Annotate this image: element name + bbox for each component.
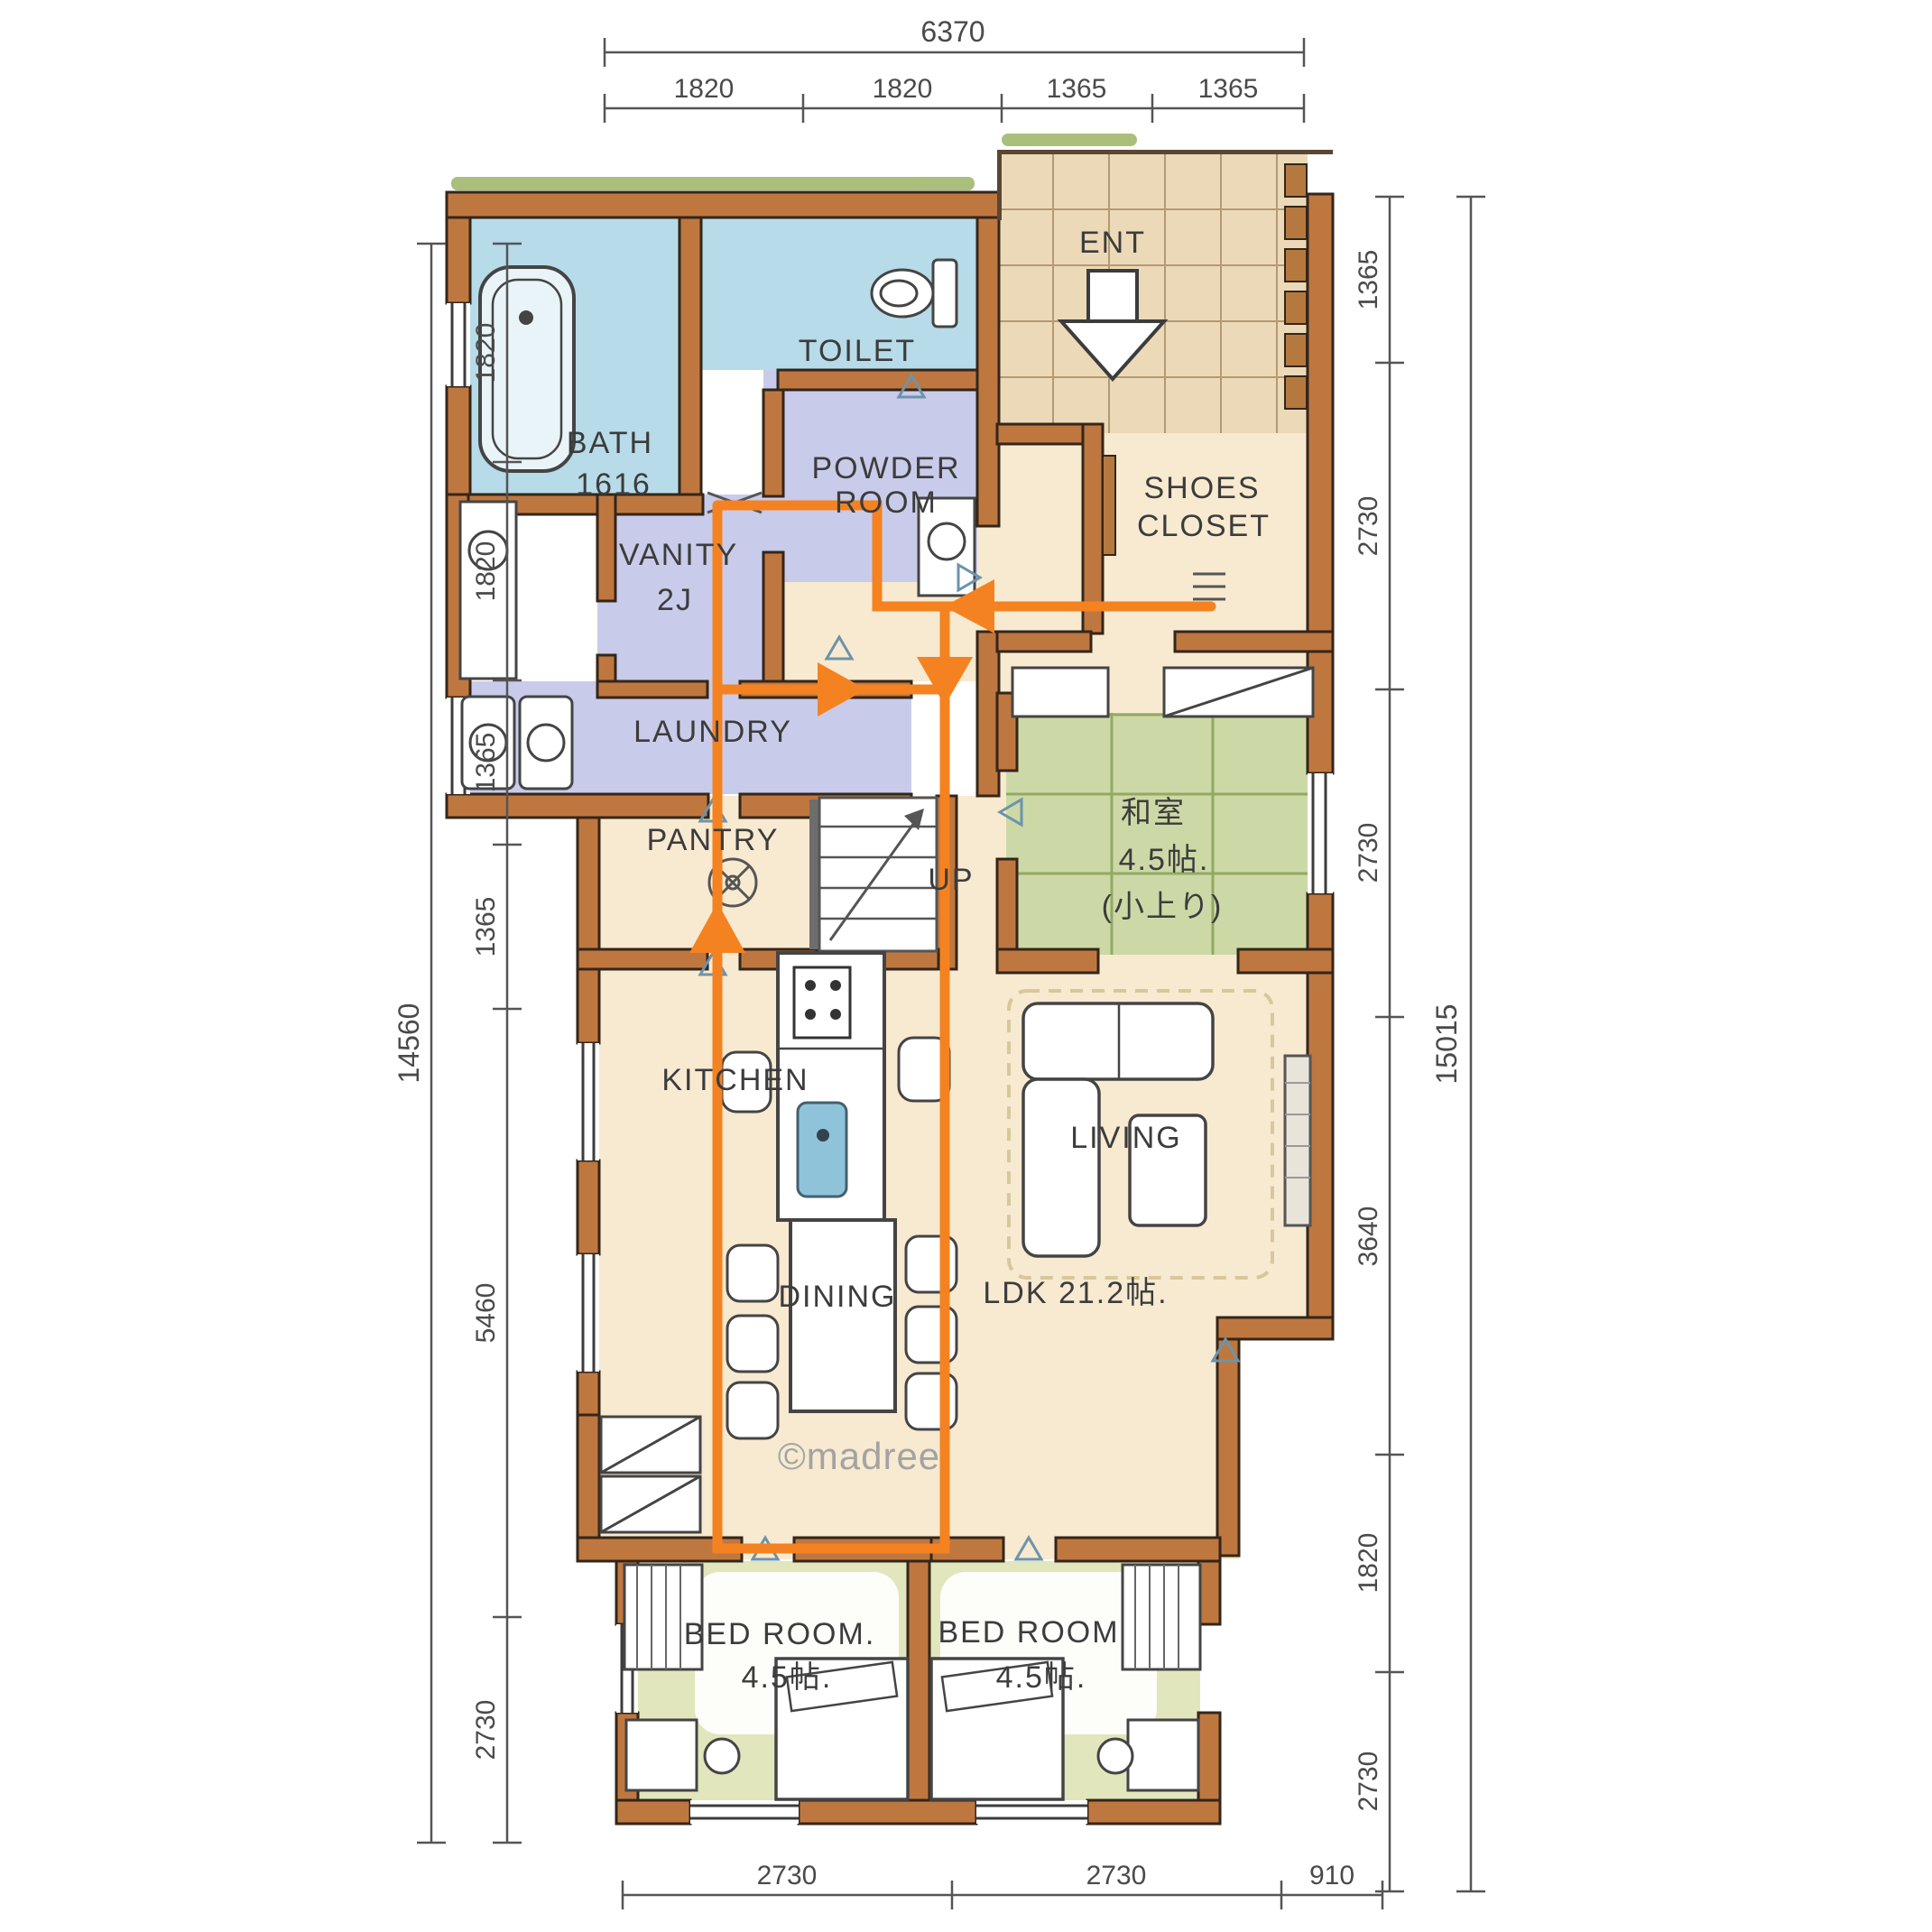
dim-top-total: 6370 — [920, 15, 984, 48]
dim-left-seg-5: 2730 — [471, 1700, 501, 1761]
dim-right-seg-1: 2730 — [1354, 496, 1383, 557]
watermark-text: ©madree — [778, 1435, 940, 1477]
dim-top-seg-0: 1820 — [674, 74, 735, 104]
label-tatami-name: 和室 — [1121, 796, 1186, 830]
dim-bottom-seg-1: 2730 — [1086, 1861, 1147, 1890]
dim-left-seg-0: 1820 — [471, 323, 501, 384]
label-tatami-size: 4.5帖. — [1119, 843, 1210, 877]
label-up: UP — [928, 863, 974, 897]
label-toilet: TOILET — [799, 334, 916, 368]
label-bedroom1: BED ROOM. — [684, 1617, 876, 1651]
dining-set — [727, 1220, 957, 1438]
dining-table — [790, 1220, 895, 1411]
floor-plan-drawing: 6370 1820 1820 1365 1365 14560 1820 1820… — [0, 0, 1932, 1932]
dim-left-seg-2: 1365 — [471, 733, 501, 793]
label-bath: BATH — [567, 426, 653, 460]
sofa-chaise — [1023, 1079, 1099, 1256]
label-powder-2: ROOM — [835, 485, 938, 520]
label-ldk: LDK 21.2帖. — [983, 1276, 1168, 1310]
dim-left-total: 14560 — [393, 1003, 425, 1084]
shoes-closet-pole — [1103, 456, 1115, 555]
label-vanity-1: VANITY — [619, 538, 738, 572]
label-bedroom2: BED ROOM — [938, 1615, 1119, 1650]
dim-right-seg-2: 2730 — [1354, 823, 1383, 883]
label-kitchen: KITCHEN — [661, 1063, 809, 1097]
dim-top-seg-1: 1820 — [873, 74, 933, 104]
label-bedroom2-size: 4.5帖. — [996, 1660, 1087, 1695]
kitchen-sink — [798, 1103, 846, 1197]
dim-top-seg-2: 1365 — [1047, 74, 1107, 104]
label-laundry: LAUNDRY — [633, 715, 792, 749]
entrance-edge-line-left — [997, 150, 1002, 220]
dim-right-seg-5: 2730 — [1354, 1752, 1383, 1812]
staircase — [819, 798, 937, 951]
label-ent: ENT — [1079, 226, 1146, 260]
tv-board — [1285, 1056, 1310, 1225]
dim-bottom-seg-0: 2730 — [757, 1861, 818, 1890]
exterior-notch — [1239, 1339, 1308, 1559]
dim-right-total: 15015 — [1430, 1004, 1463, 1085]
label-shoes-1: SHOES — [1143, 471, 1260, 505]
entrance-tile-floor — [997, 153, 1308, 433]
dim-top-seg-3: 1365 — [1198, 74, 1259, 104]
floor-plan-page: 6370 1820 1820 1365 1365 14560 1820 1820… — [0, 0, 1932, 1932]
dim-right-seg-4: 1820 — [1354, 1533, 1383, 1594]
dim-right-seg-0: 1365 — [1354, 250, 1383, 310]
label-vanity-2: 2J — [657, 583, 693, 617]
label-tatami-note: (小上り) — [1102, 890, 1224, 924]
label-living: LIVING — [1070, 1121, 1181, 1155]
label-dining: DINING — [779, 1280, 897, 1314]
dim-left-seg-3: 1365 — [471, 897, 501, 957]
entrance-edge-line — [997, 150, 1333, 154]
tatami-closets — [1012, 668, 1313, 716]
label-shoes-2: CLOSET — [1137, 509, 1271, 543]
dim-bottom-seg-2: 910 — [1309, 1861, 1354, 1890]
label-powder-1: POWDER — [812, 451, 961, 485]
label-bedroom1-size: 4.5帖. — [742, 1660, 833, 1695]
cooktop — [794, 967, 850, 1038]
label-pantry: PANTRY — [647, 823, 780, 857]
dim-left-seg-4: 5460 — [471, 1283, 501, 1344]
label-bath-size: 1616 — [576, 467, 652, 502]
dim-right-seg-3: 3640 — [1354, 1206, 1383, 1267]
dim-left-seg-1: 1820 — [471, 541, 501, 602]
